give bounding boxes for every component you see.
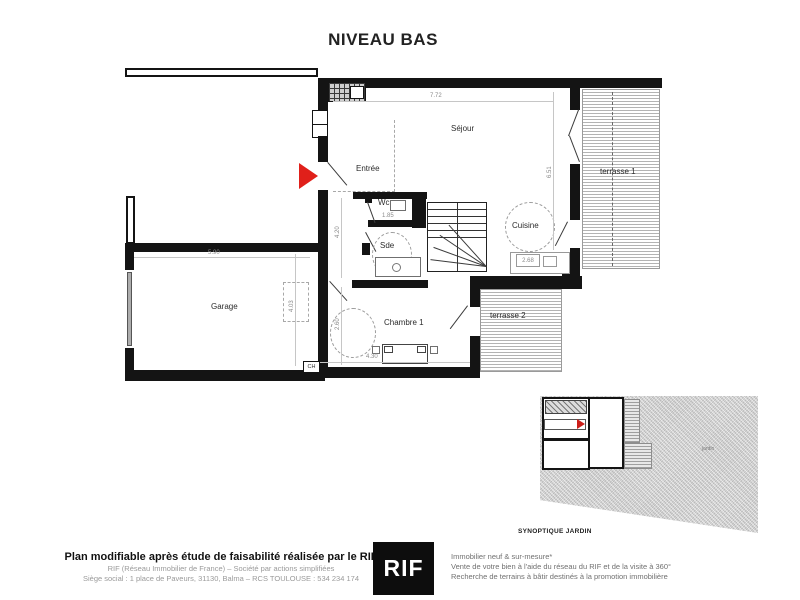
fence-wall (125, 68, 318, 77)
wall-segment (362, 243, 370, 255)
garage-hatch-outline (283, 282, 309, 322)
terrasse2-area (480, 289, 562, 372)
dim-sejour-height: 6.51 (547, 166, 553, 178)
nightstand (372, 346, 380, 354)
sde-drain (392, 263, 401, 272)
dim-chambre-width: 4.30 (366, 354, 378, 360)
dim-entree-height: 4.20 (335, 226, 341, 238)
dim-garage-width: 5.90 (208, 250, 220, 256)
wall-chambre-right (470, 289, 480, 307)
wall-chambre-top (352, 280, 428, 288)
wall-garage-bottom (125, 370, 325, 381)
footer-company-line1: RIF (Réseau Immobilier de France) – Soci… (62, 564, 380, 574)
dim-sejour-width: 7.72 (430, 93, 442, 99)
bed-pillow (384, 346, 393, 353)
wc-toilet (390, 200, 406, 211)
inset-steps (624, 443, 652, 469)
bed-pillow (417, 346, 426, 353)
boiler-box: CH (303, 361, 320, 373)
wall-right-segment (570, 88, 580, 110)
footer-service-line3: Recherche de terrains à bâtir destinés à… (451, 572, 751, 582)
dimension-line (341, 287, 342, 365)
wall-chambre-bottom (318, 367, 480, 378)
page-title: NIVEAU BAS (0, 30, 766, 50)
room-label-terrasse2: terrasse 2 (490, 311, 526, 320)
room-label-wc: Wc (378, 198, 390, 207)
terrasse1-axis (612, 92, 613, 266)
dim-chambre-height: 2.60 (335, 318, 341, 330)
entrance-arrow-icon (299, 163, 318, 189)
inset-caption: SYNOPTIQUE JARDIN (518, 528, 592, 535)
inset-wall (542, 438, 590, 441)
terrasse1-area (582, 89, 660, 269)
dimension-line (341, 198, 342, 278)
dim-garage-depth: 4.03 (289, 300, 295, 312)
inset-building-right (588, 397, 624, 469)
inset-entrance-arrow-icon (577, 419, 585, 429)
footer-service-line2: Vente de votre bien à l'aide du réseau d… (451, 562, 751, 572)
room-label-sde: Sde (380, 241, 394, 250)
footer-disclaimer: Plan modifiable après étude de faisabili… (62, 550, 380, 564)
room-label-sejour: Séjour (451, 124, 474, 133)
room-label-terrasse1: terrasse 1 (600, 167, 636, 176)
footer-services-block: Immobilier neuf & sur-mesure* Vente de v… (451, 552, 751, 582)
footer-disclaimer-block: Plan modifiable après étude de faisabili… (62, 550, 380, 583)
cuisine-sink (543, 256, 557, 267)
wall-right-segment (570, 248, 580, 278)
chambre-door-leaf (329, 281, 347, 301)
wall-garage-right (318, 243, 328, 367)
room-label-entree: Entrée (356, 164, 380, 173)
garden-label: jardin (702, 446, 714, 452)
terrasse2-door-leaf (450, 305, 468, 329)
room-label-chambre1: Chambre 1 (384, 318, 424, 327)
wall-wc-right (412, 192, 426, 228)
room-label-garage: Garage (211, 302, 238, 311)
sejour-window-leaf (568, 110, 579, 136)
dimension-line (553, 92, 554, 250)
garage-door (127, 272, 132, 346)
cuisine-unit-dim: 2.68 (522, 258, 534, 264)
stair-divider (457, 203, 458, 271)
boiler-label: CH (308, 364, 316, 370)
wall-segment (125, 243, 134, 270)
cuisine-unit-box: 2.68 (516, 254, 540, 267)
inset-hatch-band (545, 400, 587, 414)
cuisine-door-leaf (555, 222, 568, 247)
entry-window (312, 110, 328, 138)
room-label-cuisine: Cuisine (512, 221, 539, 230)
wall-segment (318, 136, 328, 162)
wall-chambre-right (470, 336, 480, 367)
dimension-line (333, 101, 553, 102)
sejour-window-leaf (569, 136, 580, 162)
chambre-wardrobe-circle (330, 308, 376, 358)
wall-garage-top (125, 243, 321, 252)
nightstand (430, 346, 438, 354)
wall-segment (318, 88, 328, 112)
footer-company-line2: Siège social : 1 place de Paveurs, 31130… (62, 574, 380, 584)
dimension-line (295, 254, 296, 366)
dimension-line (134, 257, 310, 258)
dimension-line (320, 362, 470, 363)
fence-wall (126, 196, 135, 244)
footer-service-line1: Immobilier neuf & sur-mesure* (451, 552, 751, 562)
dim-sde-width: 1.85 (382, 213, 394, 219)
technical-box (350, 86, 364, 99)
floor-plan-page: NIVEAU BAS (0, 0, 800, 600)
wall-right-segment (570, 164, 580, 220)
inset-terrace-band (624, 399, 640, 443)
wall-segment (318, 190, 328, 244)
entree-zone-outline (333, 120, 395, 192)
wall-top (318, 78, 662, 88)
rif-logo: RIF (373, 542, 434, 595)
rif-logo-text: RIF (383, 555, 423, 582)
